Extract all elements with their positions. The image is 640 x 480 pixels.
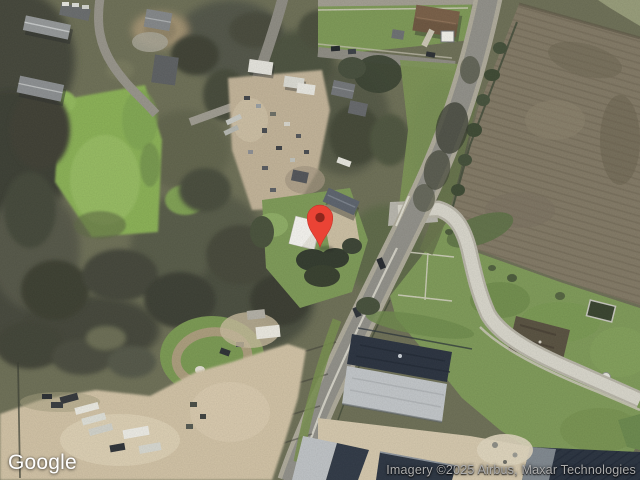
satellite-imagery	[0, 0, 640, 480]
imagery-attribution: Imagery ©2025 Airbus, Maxar Technologies	[386, 463, 636, 477]
map-canvas[interactable]: Google Imagery ©2025 Airbus, Maxar Techn…	[0, 0, 640, 480]
google-logo[interactable]: Google	[8, 451, 77, 475]
